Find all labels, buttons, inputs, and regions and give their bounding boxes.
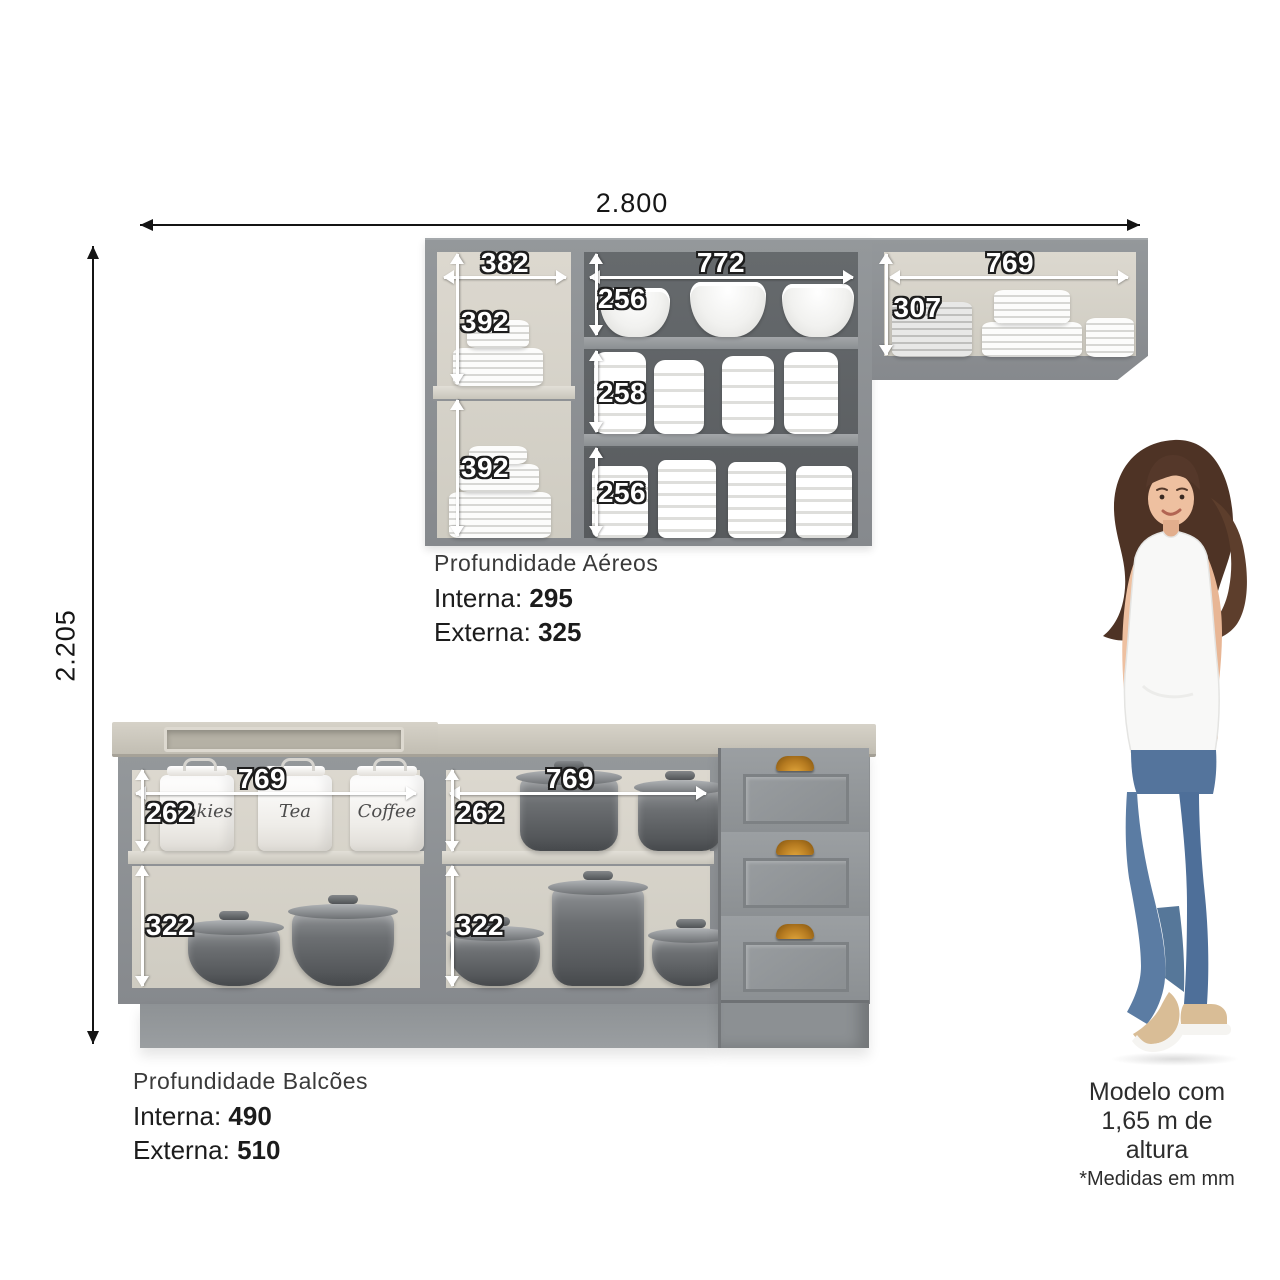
drawer-1[interactable] xyxy=(721,748,869,835)
drawer-1-panel xyxy=(743,774,849,824)
lower-depth-caption: Profundidade Balcões Interna: 490 Extern… xyxy=(133,1068,368,1166)
lower-left-shelf xyxy=(128,851,424,866)
dim-label-769-lower-left: 769 xyxy=(212,763,312,795)
bowl-stack xyxy=(722,356,774,434)
dim-label-392-bottom: 392 xyxy=(450,452,520,484)
drawer-2[interactable] xyxy=(721,832,869,919)
dim-label-769-lower-right: 769 xyxy=(520,763,620,795)
model-photo xyxy=(1083,436,1265,1082)
dim-label-256-top: 256 xyxy=(587,283,657,315)
plate-stack xyxy=(1086,318,1134,357)
dim-label-382: 382 xyxy=(455,247,555,279)
drawer-3-handle-icon[interactable] xyxy=(776,924,814,939)
overall-width-arrow xyxy=(140,224,1140,226)
dim-label-392-top: 392 xyxy=(450,306,520,338)
sink-cutout xyxy=(164,727,404,752)
plate-stack xyxy=(449,492,551,538)
dim-label-262-left: 262 xyxy=(130,797,210,829)
bowl-stack xyxy=(796,466,852,538)
overall-height-label: 2.205 xyxy=(51,596,82,696)
bowl-stack xyxy=(728,462,786,538)
drawer-tower xyxy=(718,748,869,1048)
upper-depth-interna: Interna: 295 xyxy=(434,583,658,614)
dim-label-322-left: 322 xyxy=(130,910,210,942)
lower-right-shelf xyxy=(442,851,714,866)
drawer-2-panel xyxy=(743,858,849,908)
interna-label: Interna: xyxy=(434,583,522,613)
upper-middle-shelf-1 xyxy=(584,337,858,351)
bowl-stack xyxy=(784,352,838,434)
plate-stack xyxy=(994,290,1070,324)
plinth xyxy=(140,1004,718,1048)
drawer-2-handle-icon[interactable] xyxy=(776,840,814,855)
dim-label-307: 307 xyxy=(880,292,955,324)
left-countertop xyxy=(112,722,438,757)
lower-depth-title: Profundidade Balcões xyxy=(133,1068,368,1095)
dim-label-258: 258 xyxy=(587,377,657,409)
dim-label-769-upper: 769 xyxy=(960,247,1060,279)
jar-tea-label: Tea xyxy=(258,801,332,822)
drawer-1-handle-icon[interactable] xyxy=(776,756,814,771)
model-caption: Modelo com 1,65 m de altura *Medidas em … xyxy=(1067,1078,1247,1193)
lower-depth-interna: Interna: 490 xyxy=(133,1101,368,1132)
upper-depth-title: Profundidade Aéreos xyxy=(434,550,658,577)
lower-depth-externa: Externa: 510 xyxy=(133,1135,368,1166)
bowl-stack xyxy=(658,460,716,538)
upper-depth-caption: Profundidade Aéreos Interna: 295 Externa… xyxy=(434,550,658,648)
dim-label-772: 772 xyxy=(671,247,771,279)
dim-label-256-bottom: 256 xyxy=(587,477,657,509)
externa-value: 325 xyxy=(538,617,581,647)
units-note: *Medidas em mm xyxy=(1067,1165,1247,1193)
dim-label-262-right: 262 xyxy=(440,797,520,829)
drawer-3-panel xyxy=(743,942,849,992)
externa-label: Externa: xyxy=(133,1135,230,1165)
externa-label: Externa: xyxy=(434,617,531,647)
upper-depth-externa: Externa: 325 xyxy=(434,617,658,648)
product-dimension-sheet: { "overall": { "width_label": "2.800", "… xyxy=(0,0,1280,1280)
interna-value: 490 xyxy=(228,1101,271,1131)
pot xyxy=(552,888,644,986)
plate-stack xyxy=(453,348,543,386)
pot xyxy=(638,788,722,851)
plate-stack xyxy=(982,322,1082,357)
overall-height-arrow xyxy=(92,246,94,1044)
externa-value: 510 xyxy=(237,1135,280,1165)
interna-label: Interna: xyxy=(133,1101,221,1131)
model-caption-line2: 1,65 m de altura xyxy=(1067,1107,1247,1165)
overall-width-label: 2.800 xyxy=(557,188,707,219)
dim-label-322-right: 322 xyxy=(440,910,520,942)
upper-middle-shelf-2 xyxy=(584,434,858,448)
drawer-3[interactable] xyxy=(721,916,869,1003)
bowl-stack xyxy=(654,360,704,434)
jar-coffee-label: Coffee xyxy=(350,801,424,822)
interna-value: 295 xyxy=(529,583,572,613)
model-caption-line1: Modelo com xyxy=(1067,1078,1247,1107)
